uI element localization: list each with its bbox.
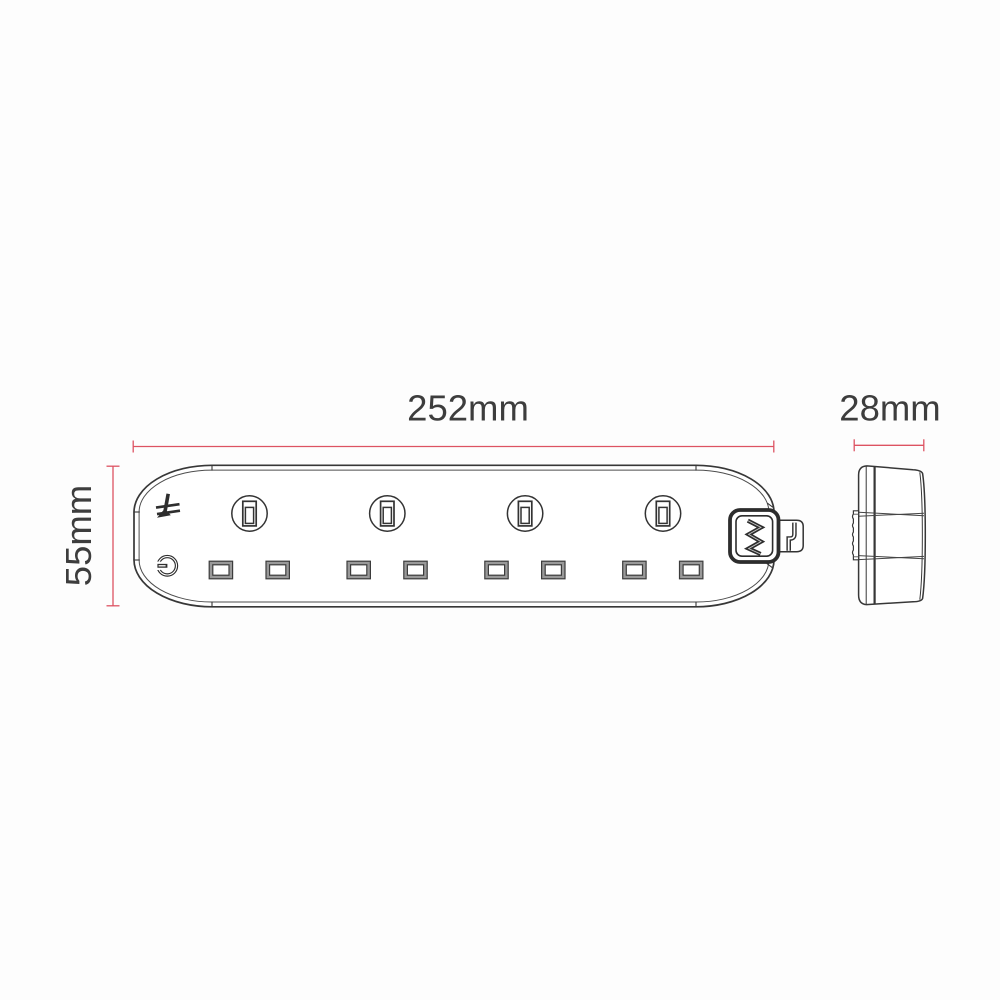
- svg-text:28mm: 28mm: [839, 388, 940, 429]
- svg-text:55mm: 55mm: [58, 485, 99, 586]
- svg-text:252mm: 252mm: [407, 388, 529, 429]
